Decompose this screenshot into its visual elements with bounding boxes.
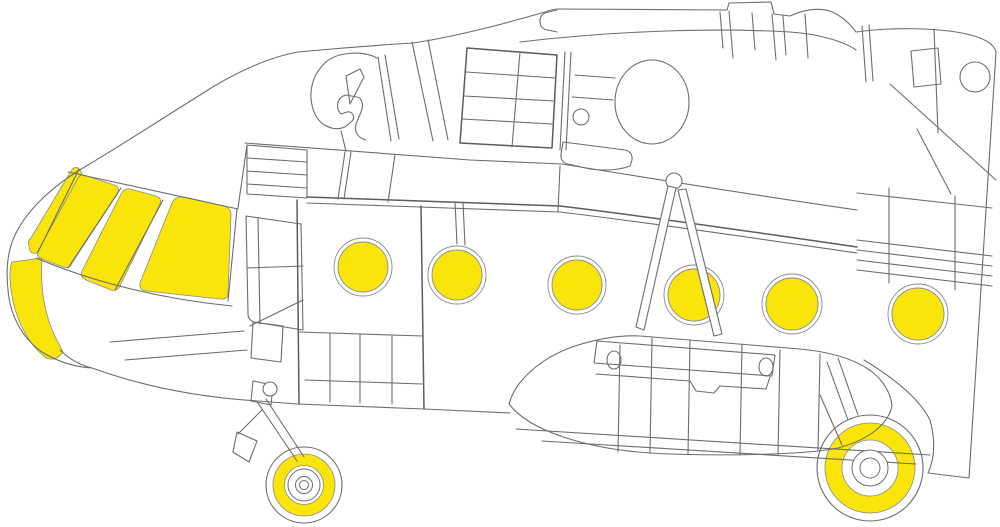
roof-seam	[344, 152, 351, 199]
cowl-small-circle	[573, 109, 589, 125]
porthole-mask	[766, 278, 818, 330]
deck-divider	[560, 52, 565, 150]
belly-panel-line	[110, 331, 244, 342]
tank-divider	[778, 350, 780, 455]
upper-deck-inner-line	[520, 30, 856, 50]
nose-gear-arm	[238, 410, 262, 434]
deck-divider	[566, 52, 571, 150]
mast-seam	[729, 11, 733, 58]
crew-door-line	[247, 266, 303, 268]
belly-line	[92, 368, 510, 413]
wheel-detail-layer	[288, 450, 888, 501]
deck-seam	[752, 13, 755, 50]
deck-seam	[805, 14, 808, 58]
helicopter-masking-diagram	[0, 0, 1000, 527]
nose-wheel-mask-hub	[300, 481, 309, 490]
cargo-door-inner-line	[299, 332, 423, 336]
nose-gear-strut	[266, 399, 304, 457]
cockpit-rear-upper-frame	[238, 145, 247, 208]
tail-bottom-edge	[928, 473, 969, 478]
main-wheel-mask-hub	[860, 458, 880, 478]
access-panel-line	[466, 72, 556, 78]
roof-strip	[412, 42, 433, 141]
porthole-mask	[432, 250, 482, 300]
tank-divider	[740, 344, 742, 455]
nose-gear-pivot	[263, 382, 277, 396]
nose-gear-strut	[258, 403, 297, 461]
boom-frame-line	[857, 193, 992, 208]
cabin-rail-lower	[307, 203, 857, 253]
deck-seam	[783, 16, 786, 55]
cargo-door-inner-line	[305, 380, 422, 384]
front-intake-tab	[540, 10, 557, 32]
deck-bottom-edge	[245, 143, 857, 210]
tank-filler-cap	[759, 358, 773, 376]
engine-cowl-circle	[615, 60, 689, 144]
tail-strip	[862, 26, 866, 82]
helicopter-line-art	[7, 2, 996, 478]
tank-divider	[688, 340, 690, 454]
tail-strip	[934, 29, 938, 133]
tail-cut-edge	[969, 52, 996, 478]
lower-nose-window-mask	[10, 258, 63, 359]
main-gear-strut	[827, 362, 848, 420]
roof-strip	[428, 40, 448, 140]
porthole-mask	[338, 242, 388, 292]
boom-frame-line	[857, 250, 992, 266]
crew-door-line	[258, 218, 260, 324]
roof-grid-line	[247, 171, 307, 175]
cabin-rail-upper	[307, 197, 857, 247]
belly-panel-line	[125, 350, 247, 360]
tail-strip	[869, 25, 873, 81]
boom-frame-line	[857, 240, 992, 256]
tank-step-line	[596, 374, 770, 393]
engine-intake-slot	[346, 69, 364, 104]
roof-grid-line	[247, 184, 307, 188]
clamshell-diagonal	[917, 129, 951, 194]
belly-panel-rect	[251, 322, 283, 362]
roof-seam	[338, 152, 345, 199]
access-panel-line	[464, 96, 555, 101]
tank-filler-cap	[607, 351, 621, 369]
nose-gear-wedge	[233, 432, 257, 462]
cowl-line	[575, 75, 615, 78]
access-panel-line	[462, 119, 553, 124]
side-seam	[558, 166, 560, 212]
roof-seam	[388, 155, 395, 202]
roof-strip	[385, 55, 399, 139]
side-seam	[463, 203, 465, 245]
cowl-line	[572, 97, 613, 100]
roof-grid-line	[247, 158, 307, 162]
tank-divider	[818, 354, 820, 450]
main-gear-strut	[838, 358, 858, 415]
roof-seam	[341, 131, 346, 151]
boom-frame-line	[857, 270, 992, 286]
mast-seam	[772, 14, 776, 60]
roof-strip	[378, 57, 391, 141]
masking-diagram-page	[0, 0, 1000, 527]
clamshell-diagonal	[890, 84, 996, 180]
engine-intake-outline	[311, 53, 377, 140]
tank-divider	[650, 338, 652, 453]
porthole-mask	[552, 260, 602, 310]
porthole-mask	[892, 288, 944, 340]
crew-door-outline	[246, 216, 303, 330]
upper-deck-outline	[298, 2, 996, 52]
boom-frame-line	[857, 260, 992, 276]
yellow-mask-layer	[10, 167, 948, 523]
crew-door-diagonal	[250, 300, 303, 326]
tail-porthole-outline	[960, 62, 990, 92]
